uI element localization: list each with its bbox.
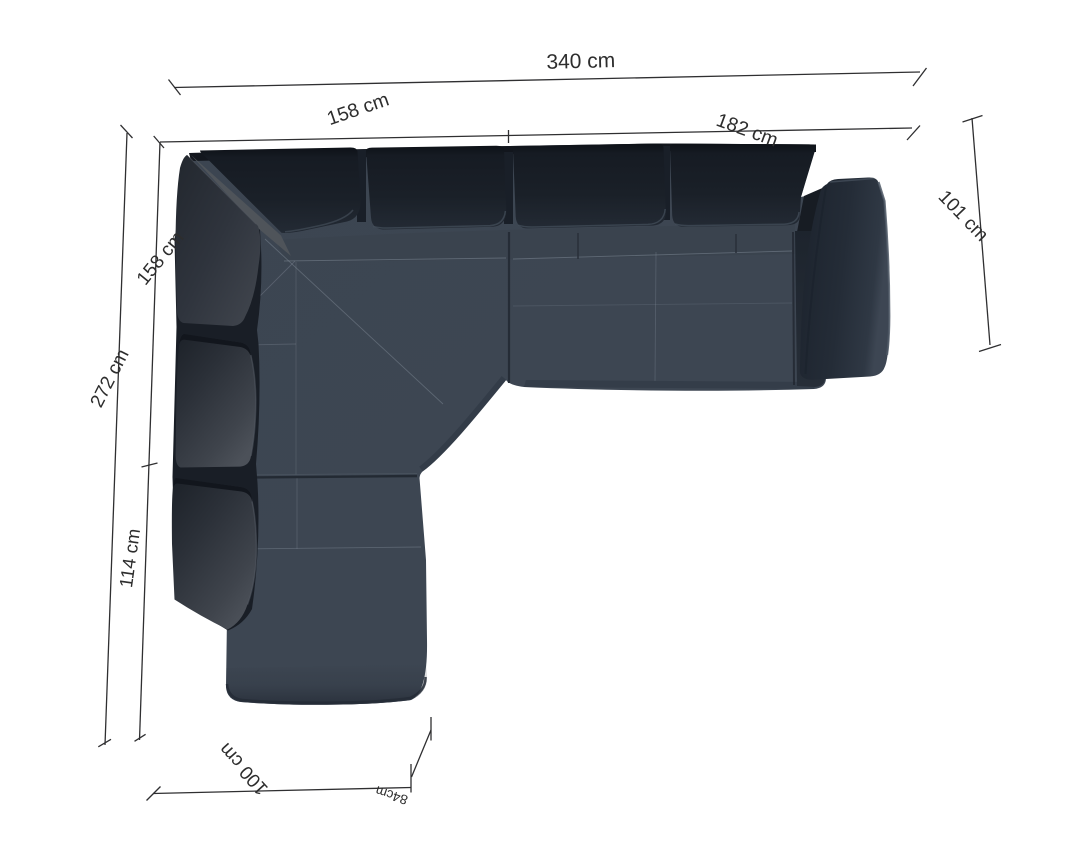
svg-text:272 cm: 272 cm	[87, 346, 134, 411]
svg-text:340 cm: 340 cm	[546, 49, 615, 74]
svg-text:84cm: 84cm	[374, 783, 410, 807]
svg-text:101 cm: 101 cm	[934, 186, 992, 245]
svg-text:158 cm: 158 cm	[324, 89, 392, 131]
svg-text:100 cm: 100 cm	[215, 739, 272, 799]
svg-text:114 cm: 114 cm	[115, 527, 144, 589]
